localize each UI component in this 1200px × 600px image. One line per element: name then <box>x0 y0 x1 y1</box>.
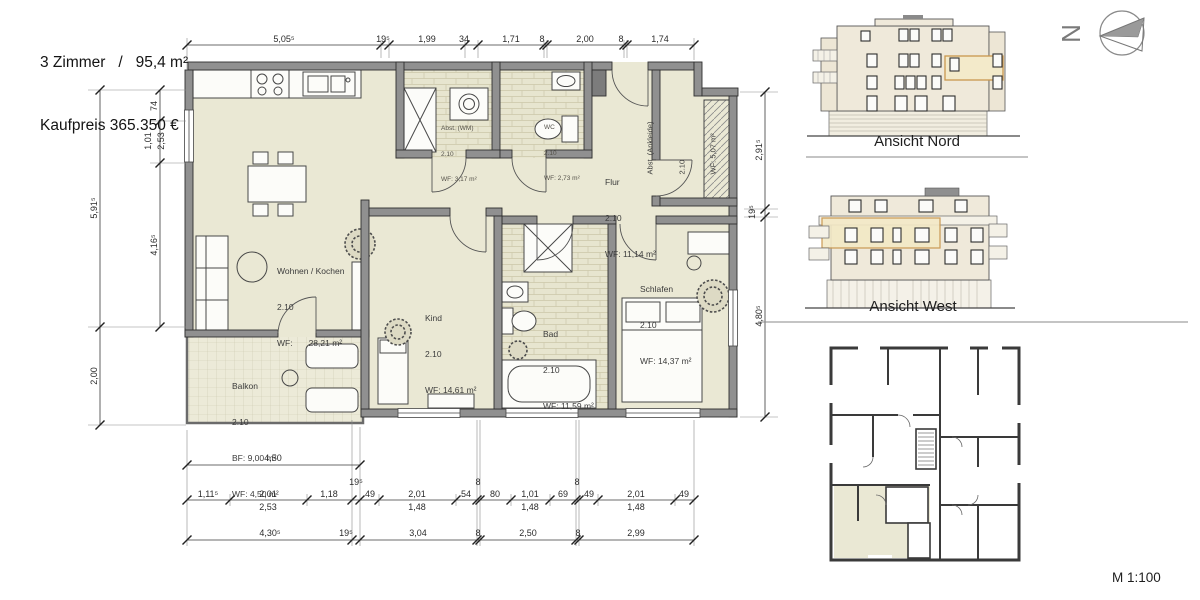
dim-row1-0: 1,11⁵ <box>198 489 219 499</box>
dim-row2-2: 3,04 <box>409 528 427 538</box>
dim-row1-2: 1,18 <box>320 489 338 499</box>
dim-row1-sub-3: 1,48 <box>627 502 645 512</box>
dim-right-0: 2,91⁵ <box>754 139 764 160</box>
dim-top-7: 8 <box>618 34 623 44</box>
elevation-west <box>805 188 1015 308</box>
dim-top-1: 19⁵ <box>376 34 390 44</box>
overview-plan <box>830 347 1021 561</box>
dim-row1-3: 19⁵ <box>349 477 363 487</box>
north-letter: N <box>1056 24 1087 43</box>
dim-top-6: 2,00 <box>576 34 594 44</box>
scale-label: M 1:100 <box>1112 570 1161 585</box>
dim-balkon-width: 4,50 <box>264 453 282 463</box>
dim-row2-6: 2,99 <box>627 528 645 538</box>
dim-left-inner-2: 2,53 <box>156 132 166 150</box>
room-label-kind: Kind 2.10 WF: 14,61 m² <box>425 288 476 420</box>
room-label-schlafen: Schlafen 2.10 WF: 14,37 m² <box>640 259 691 391</box>
dim-row1-14: 49 <box>679 489 689 499</box>
dim-row1-7: 8 <box>475 477 480 487</box>
room-label-wohnen: Wohnen / Kochen 2.10 WF:28,21 m² <box>277 241 344 373</box>
dim-right-2: 4,80⁵ <box>754 305 764 326</box>
dim-row1-sub-0: 2,53 <box>259 502 277 512</box>
listing-header: 3 Zimmer / 95,4 m² Kaufpreis 365.350 € <box>40 10 188 178</box>
dim-row1-10: 69 <box>558 489 568 499</box>
dim-top-3: 34 <box>459 34 469 44</box>
dim-row1-8: 80 <box>490 489 500 499</box>
dim-row1-11: 8 <box>574 477 579 487</box>
dim-top-4: 1,71 <box>502 34 520 44</box>
dim-left-outer-0: 5,91⁵ <box>89 197 99 218</box>
dim-right-1: 19⁵ <box>747 205 757 219</box>
dim-row2-0: 4,30⁵ <box>259 528 280 538</box>
elevation-west-label: Ansicht West <box>869 298 956 315</box>
elevation-nord-label: Ansicht Nord <box>874 133 960 150</box>
listing-title: 3 Zimmer / 95,4 m² <box>40 52 188 73</box>
dim-top-0: 5,05⁵ <box>273 34 294 44</box>
dim-row2-4: 2,50 <box>519 528 537 538</box>
dim-row1-5: 2,01 <box>408 489 426 499</box>
dim-row1-6: 54 <box>461 489 471 499</box>
compass-icon <box>1100 11 1144 55</box>
dim-row1-12: 49 <box>584 489 594 499</box>
dim-left-inner-1: 1,01 <box>143 132 153 150</box>
blueprint-page: 3 Zimmer / 95,4 m² Kaufpreis 365.350 € N… <box>0 0 1200 600</box>
dim-row1-1: 2,01 <box>259 489 277 499</box>
room-label-bad: Bad 2.10 WF: 11,59 m² <box>543 304 594 436</box>
room-label-wc: WC 2.10 WF: 2,73 m² <box>544 107 580 201</box>
dim-row2-1: 19⁵ <box>339 528 353 538</box>
room-label-abst-wm: Abst. (WM) 2.10 WF: 3,17 m² <box>441 108 477 202</box>
dim-top-2: 1,99 <box>418 34 436 44</box>
dim-left-inner-3: 4,16⁵ <box>149 234 159 255</box>
dim-row1-9: 1,01 <box>521 489 539 499</box>
dim-row2-3: 8 <box>475 528 480 538</box>
dim-row1-sub-2: 1,48 <box>521 502 539 512</box>
dim-left-outer-1: 2,00 <box>89 367 99 385</box>
dim-row2-5: 8 <box>575 528 580 538</box>
dim-left-inner-0: 74 <box>149 101 159 111</box>
dim-row1-sub-1: 1,48 <box>408 502 426 512</box>
room-label-ankleide: Abst. (Ankleide) 2.10 WF: 5,07 m² <box>624 122 740 175</box>
dim-row1-4: 49 <box>365 489 375 499</box>
dim-top-8: 1,74 <box>651 34 669 44</box>
dim-row1-13: 2,01 <box>627 489 645 499</box>
elevation-nord <box>807 15 1020 136</box>
dim-top-5: 8 <box>539 34 544 44</box>
